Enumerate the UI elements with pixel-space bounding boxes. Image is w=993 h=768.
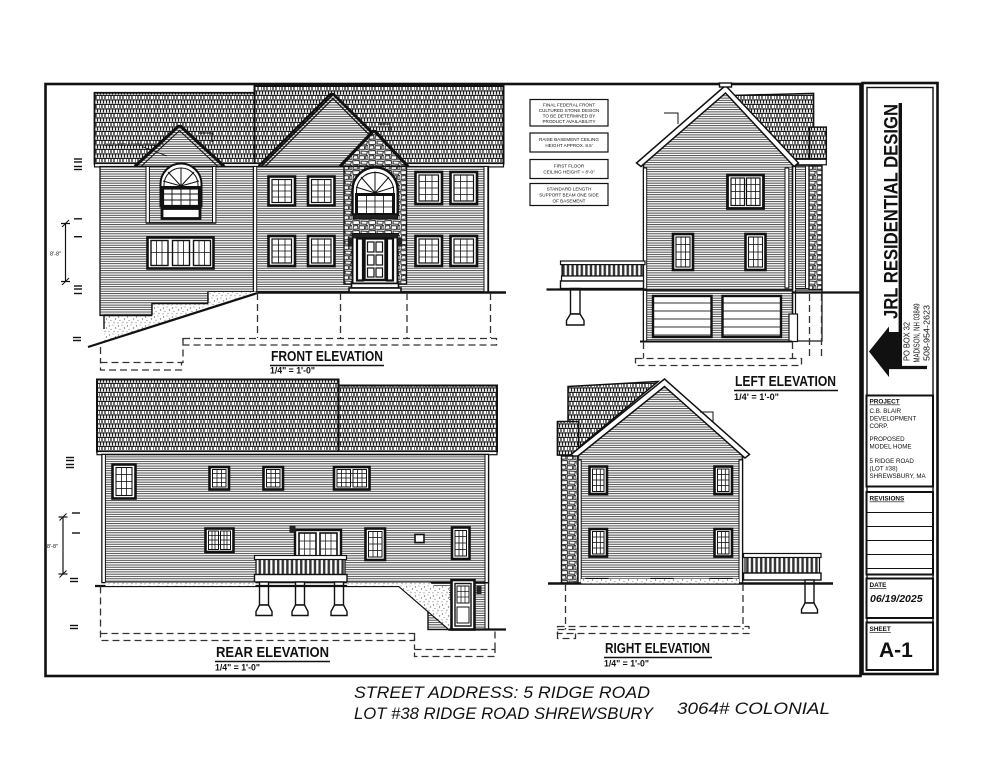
svg-text:TO BE DETERMINED BY: TO BE DETERMINED BY	[543, 114, 596, 119]
svg-text:508-954-2623: 508-954-2623	[923, 305, 932, 361]
svg-text:1/4" = 1'-0": 1/4" = 1'-0"	[215, 663, 260, 674]
svg-text:DEVELOPMENT: DEVELOPMENT	[870, 416, 917, 423]
svg-text:(LOT #38): (LOT #38)	[870, 466, 898, 473]
svg-text:REAR ELEVATION: REAR ELEVATION	[216, 645, 329, 661]
svg-text:CEILING HEIGHT = 8'-0": CEILING HEIGHT = 8'-0"	[543, 170, 595, 175]
svg-text:STREET ADDRESS: 5 RIDGE ROAD: STREET ADDRESS: 5 RIDGE ROAD	[354, 684, 650, 702]
svg-text:HEIGHT APPROX. 8.5': HEIGHT APPROX. 8.5'	[545, 143, 592, 148]
svg-text:06/19/2025: 06/19/2025	[870, 593, 923, 605]
svg-text:CORP.: CORP.	[870, 423, 889, 430]
svg-text:3064# COLONIAL: 3064# COLONIAL	[677, 700, 830, 718]
svg-text:MODEL HOME: MODEL HOME	[870, 444, 912, 451]
svg-text:LOT #38 RIDGE ROAD SHREWSBURY: LOT #38 RIDGE ROAD SHREWSBURY	[354, 705, 654, 723]
svg-text:8'-8": 8'-8"	[47, 544, 58, 550]
svg-text:PROJECT: PROJECT	[870, 399, 900, 406]
svg-text:FRONT ELEVATION: FRONT ELEVATION	[271, 349, 383, 365]
svg-text:SHEET: SHEET	[870, 626, 891, 633]
svg-text:CULTURED STONE DESIGN: CULTURED STONE DESIGN	[539, 108, 600, 113]
svg-text:8'-8": 8'-8"	[50, 252, 61, 258]
svg-text:A-1: A-1	[879, 639, 913, 662]
svg-text:LEFT ELEVATION: LEFT ELEVATION	[735, 374, 836, 390]
svg-text:RIGHT ELEVATION: RIGHT ELEVATION	[605, 641, 710, 657]
svg-text:1/4" = 1'-0": 1/4" = 1'-0"	[270, 366, 315, 377]
svg-text:PRODUCT AVAILABILITY: PRODUCT AVAILABILITY	[542, 119, 595, 124]
svg-text:C.B. BLAIR: C.B. BLAIR	[870, 408, 902, 415]
svg-text:MADISON, NH 03849: MADISON, NH 03849	[913, 303, 922, 362]
svg-text:PROPOSED: PROPOSED	[870, 436, 906, 443]
svg-text:STANDARD LENGTH: STANDARD LENGTH	[547, 187, 592, 192]
svg-text:PO BOX 32: PO BOX 32	[903, 322, 912, 361]
svg-text:FIRST FLOOR: FIRST FLOOR	[554, 164, 585, 169]
svg-text:REVISIONS: REVISIONS	[870, 496, 906, 503]
svg-text:DATE: DATE	[870, 582, 888, 589]
svg-text:5 RIDGE ROAD: 5 RIDGE ROAD	[870, 458, 915, 465]
svg-text:RAISE BASEMENT CEILING: RAISE BASEMENT CEILING	[539, 137, 599, 142]
svg-text:1/4' = 1'-0": 1/4' = 1'-0"	[734, 392, 779, 403]
svg-text:OF BASEMENT: OF BASEMENT	[553, 199, 586, 204]
svg-text:CULTURED STONE PRODUCT: CULTURED STONE PRODUCT	[104, 142, 164, 147]
svg-text:SHREWSBURY, MA: SHREWSBURY, MA	[870, 473, 927, 480]
svg-text:SUPPORT BEAM ONE SIDE: SUPPORT BEAM ONE SIDE	[539, 193, 599, 198]
svg-text:FINAL FEDERAL FRONT: FINAL FEDERAL FRONT	[543, 103, 595, 108]
svg-text:1/4" = 1'-0": 1/4" = 1'-0"	[604, 659, 649, 670]
